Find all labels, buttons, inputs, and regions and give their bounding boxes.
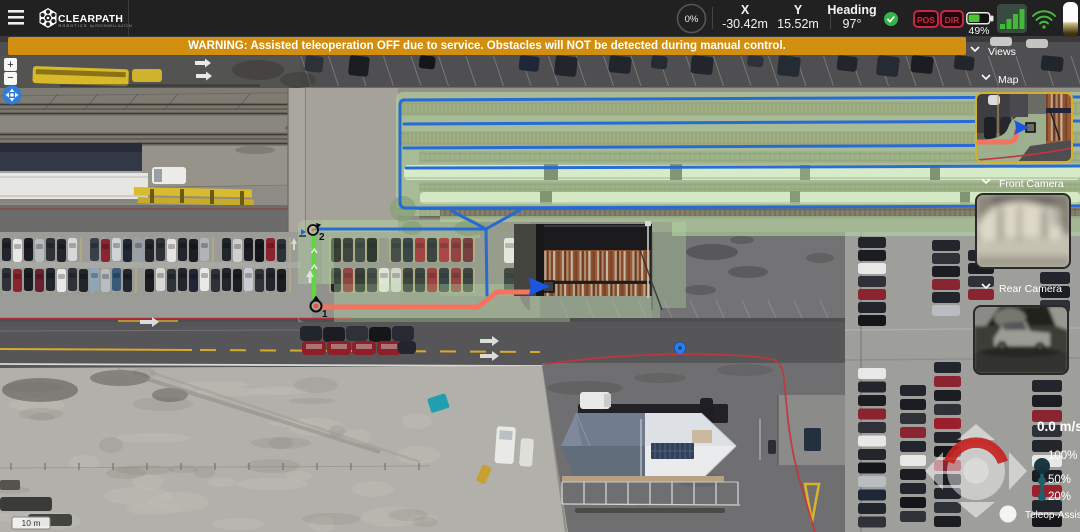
svg-text:10 m: 10 m (22, 518, 41, 528)
svg-text:Views: Views (988, 46, 1016, 58)
svg-text:−: − (7, 72, 13, 84)
svg-text:Front Camera: Front Camera (999, 178, 1064, 190)
svg-text:Map: Map (998, 74, 1019, 86)
svg-text:ROBOTICS by ROCKWELL AUTOMATIO: ROBOTICS by ROCKWELL AUTOMATION (59, 24, 133, 28)
svg-text:2: 2 (319, 232, 325, 243)
svg-text:DIR: DIR (945, 15, 960, 25)
svg-text:0.0 m/s: 0.0 m/s (1037, 419, 1080, 434)
svg-text:100%: 100% (1048, 450, 1077, 462)
svg-text:+: + (7, 59, 13, 71)
svg-text:20%: 20% (1048, 491, 1071, 503)
svg-text:POS: POS (917, 15, 935, 25)
svg-text:0%: 0% (685, 14, 699, 25)
svg-text:Rear Camera: Rear Camera (999, 283, 1062, 295)
svg-text:1: 1 (322, 309, 328, 320)
svg-text:50%: 50% (1048, 474, 1071, 486)
svg-text:Teleop-Assist: Teleop-Assist (1025, 510, 1080, 521)
